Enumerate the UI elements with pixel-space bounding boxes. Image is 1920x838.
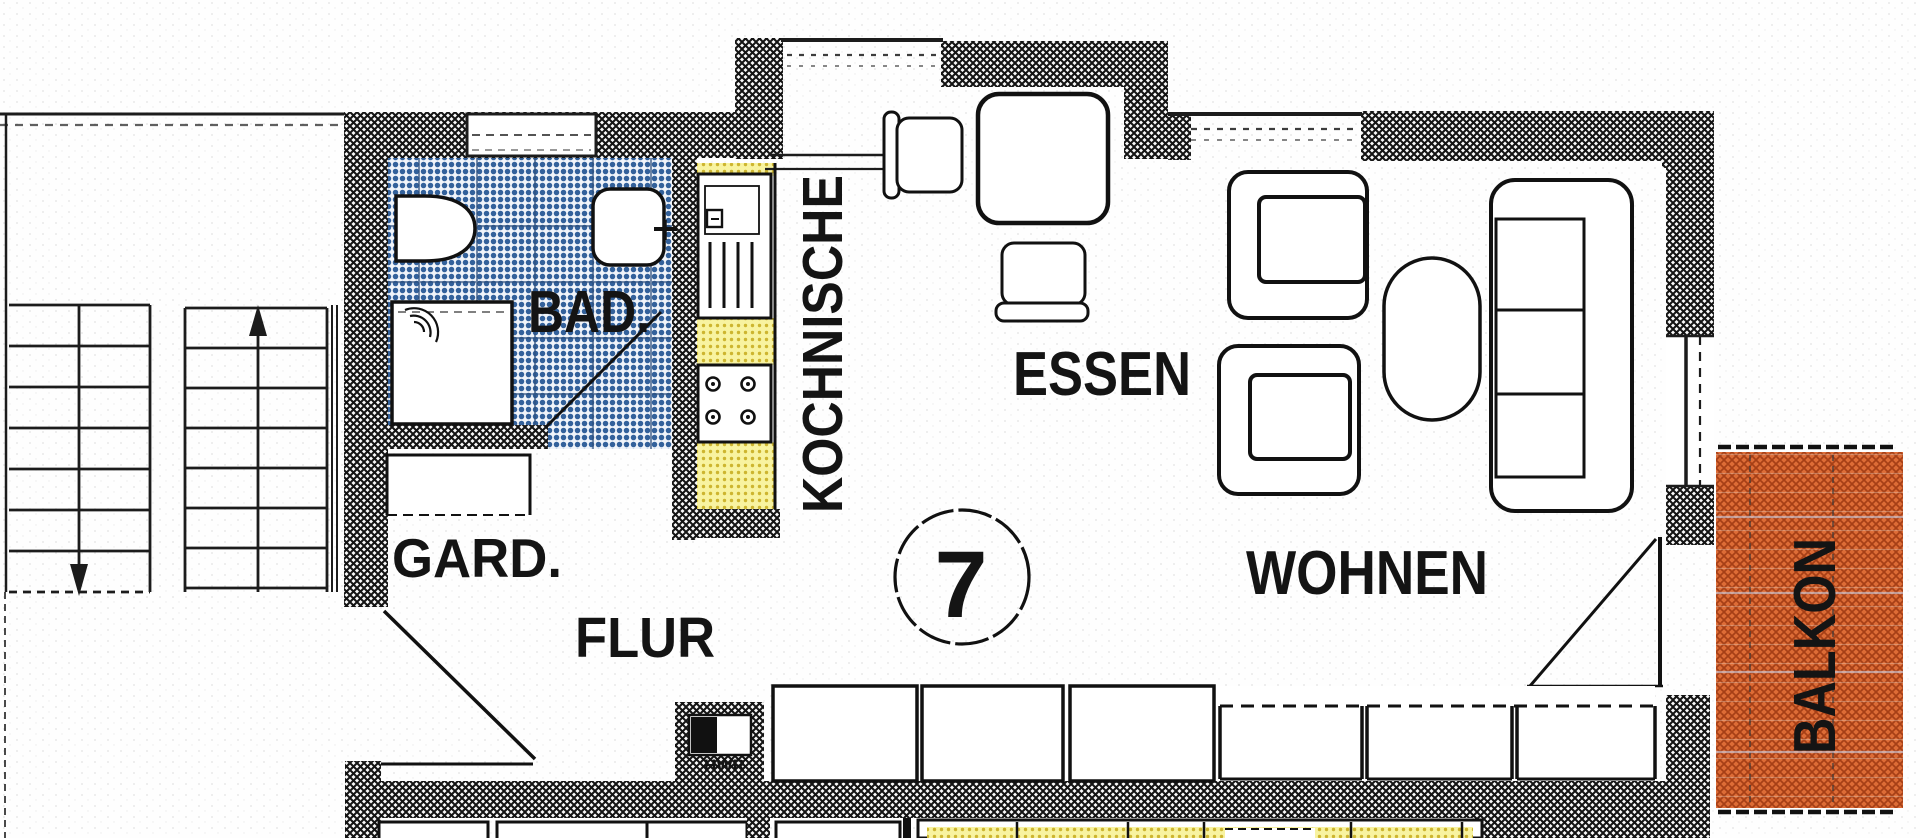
svg-text:KOCHNISCHE: KOCHNISCHE	[791, 175, 855, 513]
svg-text:BALKON: BALKON	[1782, 538, 1848, 754]
svg-text:FLUR: FLUR	[575, 606, 715, 670]
svg-text:ESSEN: ESSEN	[1013, 340, 1191, 409]
svg-text:HWR: HWR	[704, 756, 745, 775]
svg-text:GARD.: GARD.	[392, 527, 562, 589]
svg-text:7: 7	[935, 532, 988, 638]
svg-text:WOHNEN: WOHNEN	[1246, 539, 1488, 608]
svg-text:BAD.: BAD.	[528, 279, 650, 345]
